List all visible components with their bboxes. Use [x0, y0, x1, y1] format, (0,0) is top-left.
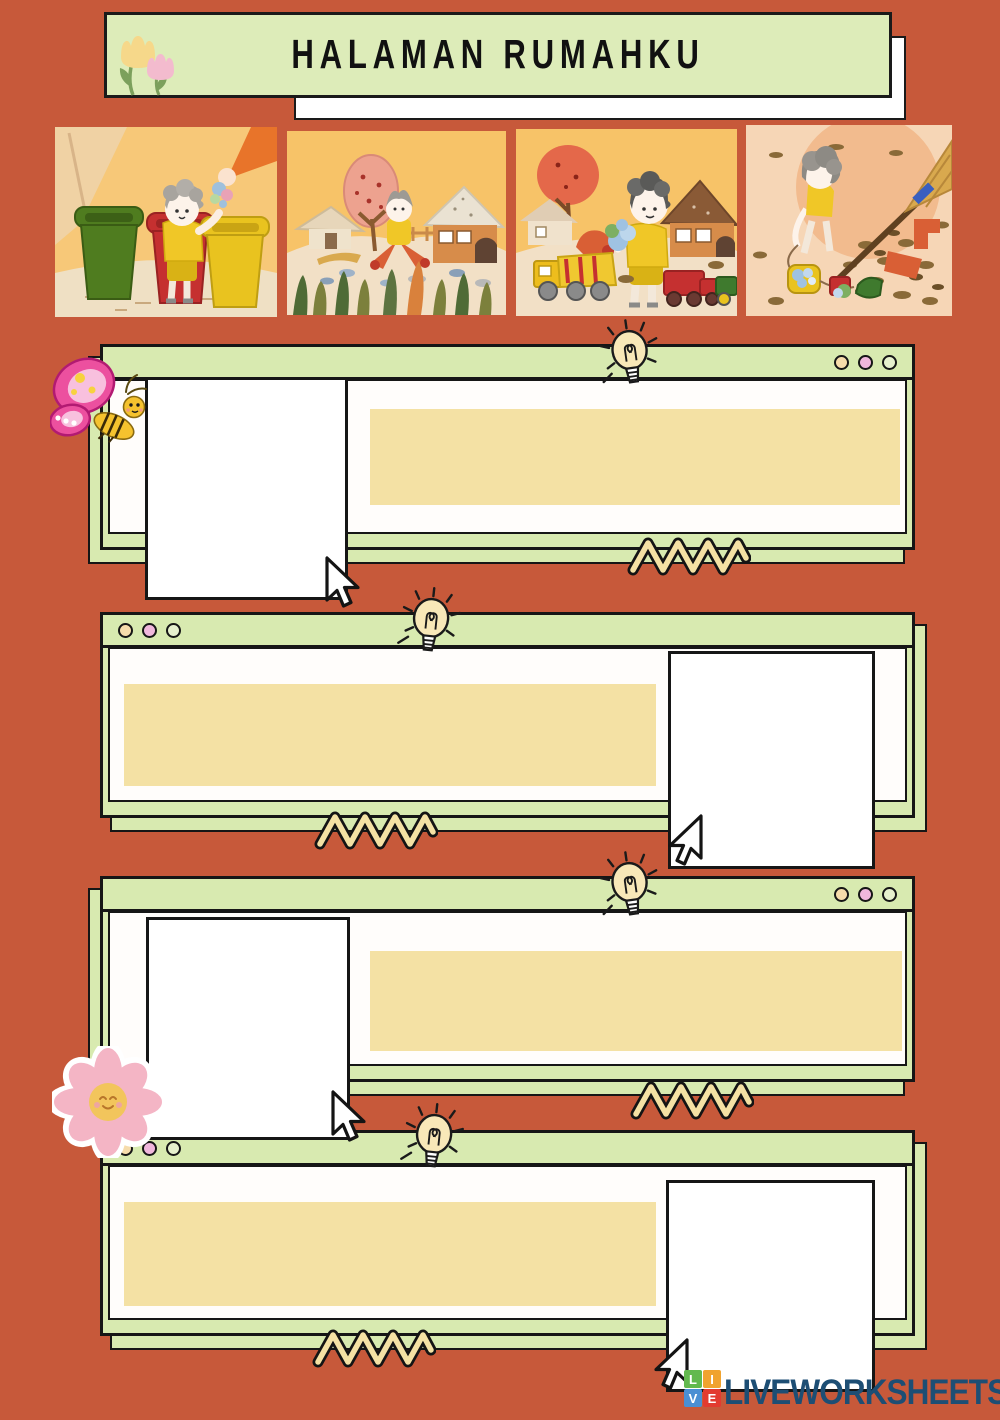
card-3-answer-box[interactable]: [146, 917, 350, 1140]
window-dot-icon: [834, 887, 849, 902]
window-dot-icon: [882, 355, 897, 370]
card-4-text-area: [124, 1202, 656, 1306]
card-3-text-area: [370, 951, 902, 1051]
page-title: HALAMAN RUMAHKU: [291, 32, 704, 78]
illustration-littered-yard: [287, 131, 506, 315]
logo-block-l: L: [684, 1370, 702, 1388]
liveworksheets-logo[interactable]: L I V E LIVEWORKSHEETS: [684, 1370, 1000, 1410]
worksheet-page: HALAMAN RUMAHKU: [0, 0, 1000, 1420]
card-1-window-dots: [819, 355, 912, 370]
lightbulb-icon: [393, 583, 468, 674]
window-dot-icon: [166, 1141, 181, 1156]
card-2-window-dots: [103, 623, 196, 638]
title-banner: HALAMAN RUMAHKU: [104, 12, 892, 98]
flower-icon: [52, 1046, 164, 1163]
butterfly-icon: [50, 350, 150, 461]
logo-block-e: E: [703, 1389, 721, 1407]
card-1-header: [103, 347, 912, 380]
window-dot-icon: [166, 623, 181, 638]
card-1-text-area: [370, 409, 900, 505]
card-3-window-dots: [819, 887, 912, 902]
tulips-icon: [113, 31, 191, 97]
cursor-icon: [320, 556, 362, 619]
window-dot-icon: [882, 887, 897, 902]
logo-block-i: I: [703, 1370, 721, 1388]
cursor-icon: [666, 814, 708, 877]
cursor-icon: [326, 1090, 368, 1153]
window-dot-icon: [118, 623, 133, 638]
logo-letter-blocks: L I V E: [684, 1370, 721, 1407]
window-dot-icon: [142, 623, 157, 638]
window-dot-icon: [834, 355, 849, 370]
card-1-answer-box[interactable]: [145, 377, 348, 600]
window-dot-icon: [858, 887, 873, 902]
lightbulb-icon: [396, 1099, 471, 1190]
card-3-header: [103, 879, 912, 912]
window-dot-icon: [858, 355, 873, 370]
illustration-sorting-trash-into-bins: [55, 127, 277, 317]
zigzag-icon: [314, 808, 438, 857]
illustration-sweeping-yard: [746, 125, 952, 316]
lightbulb-icon: [592, 314, 669, 407]
illustration-boy-collecting-trash: [516, 129, 737, 316]
zigzag-icon: [312, 1326, 436, 1375]
card-2-header: [103, 615, 912, 648]
lightbulb-icon: [592, 846, 669, 939]
zigzag-icon: [630, 1078, 754, 1127]
logo-block-v: V: [684, 1389, 702, 1407]
card-4-answer-box[interactable]: [666, 1180, 875, 1392]
zigzag-icon: [627, 534, 751, 583]
card-2-text-area: [124, 684, 656, 786]
logo-text: LIVEWORKSHEETS: [724, 1375, 1000, 1410]
